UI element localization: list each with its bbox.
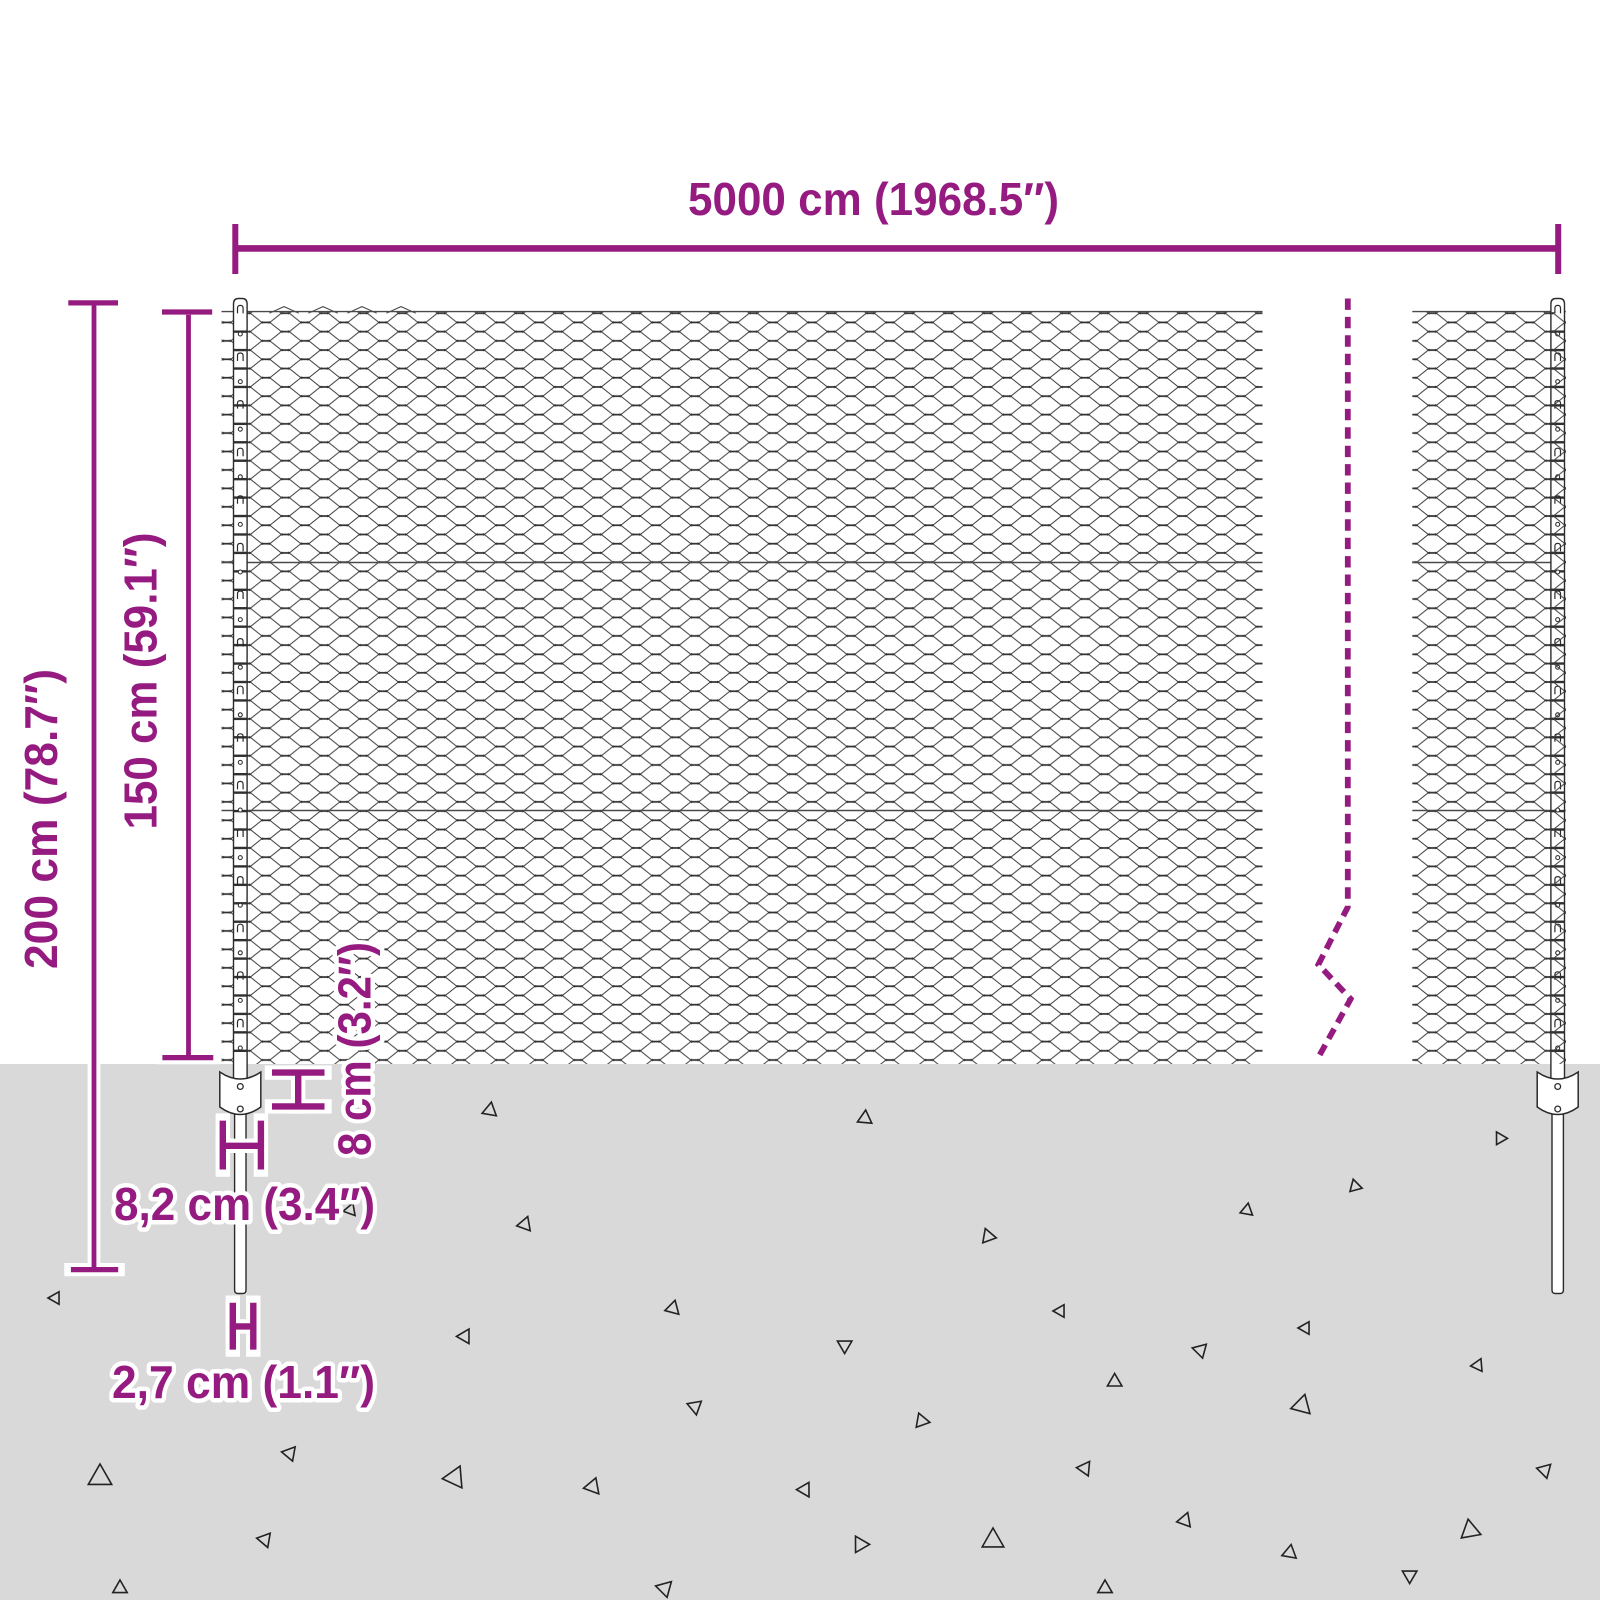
svg-text:5000 cm (1968.5″): 5000 cm (1968.5″) <box>688 173 1059 225</box>
svg-text:150 cm (59.1″): 150 cm (59.1″) <box>114 533 166 830</box>
svg-text:200 cm (78.7″): 200 cm (78.7″) <box>15 669 67 969</box>
svg-text:8,2 cm (3.4″): 8,2 cm (3.4″) <box>114 1178 375 1230</box>
svg-text:8 cm (3.2″): 8 cm (3.2″) <box>329 942 381 1156</box>
svg-text:2,7 cm (1.1″): 2,7 cm (1.1″) <box>112 1356 375 1408</box>
